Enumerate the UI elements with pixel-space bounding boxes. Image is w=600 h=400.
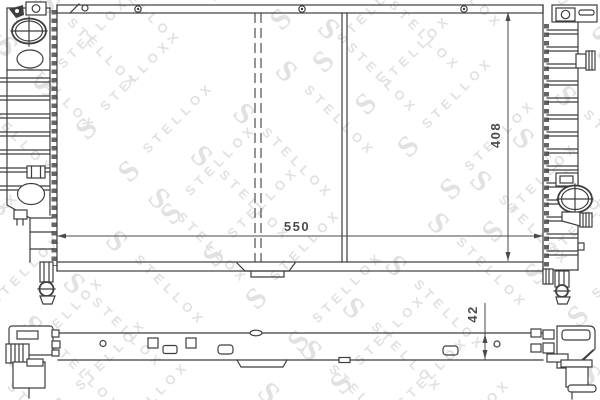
left-tank-side-clip (14, 210, 27, 225)
right-tank-bump (578, 243, 584, 250)
watermark-text: STELLOX (301, 82, 379, 160)
right-tank-lower-bracket (562, 212, 592, 227)
left-drain-plug (38, 262, 55, 304)
bottom-channel-tab (237, 360, 287, 367)
watermark-logo: S (251, 375, 286, 400)
drawing-canvas: STELLOXSSTELLOXSSTELLOXSSTELLOXSSTELLOXS… (0, 0, 600, 400)
top-bar-screws (135, 6, 467, 12)
watermark-text: STELLOX (132, 252, 210, 330)
watermark-logo: S (475, 214, 510, 249)
watermark-logo: S (306, 44, 341, 79)
core-bottom-bar (57, 262, 543, 271)
right-drain-plug (543, 269, 570, 304)
watermark-text: STELLOX (292, 0, 370, 4)
lower-oval-port (18, 184, 45, 205)
watermark-logo: S (44, 390, 79, 400)
watermark-logo: S (378, 248, 413, 283)
right-tank-top-bracket (552, 5, 597, 22)
dimension-core-width: 550 (57, 219, 543, 239)
watermark-text: STELLOX (149, 0, 227, 8)
watermark-layer: STELLOXSSTELLOXSSTELLOXSSTELLOXSSTELLOXS… (0, 0, 600, 400)
watermark-logo: S (433, 171, 468, 206)
watermark-logo: S (263, 2, 298, 37)
watermark-text: STELLOX (436, 375, 514, 400)
watermark-logo: S (269, 54, 304, 89)
watermark-text: STELLOX (588, 223, 600, 301)
dimension-height-label: 408 (488, 122, 503, 148)
left-end-block (6, 326, 60, 398)
center-divider-dashed (255, 13, 261, 262)
left-tank-mid-bracket (27, 166, 45, 178)
watermark-logo: S (99, 223, 134, 258)
watermark-logo: S (585, 19, 600, 54)
watermark-logo: S (111, 154, 146, 189)
right-end-block (531, 326, 596, 399)
watermark-text: STELLOX (453, 234, 531, 312)
upper-oval-port (17, 50, 43, 68)
watermark-logo: S (348, 86, 383, 121)
dimension-thickness-label: 42 (465, 305, 480, 322)
dimension-width-label: 550 (284, 219, 310, 234)
watermark-text: STELLOX (72, 315, 150, 393)
watermark-text: STELLOX (581, 107, 600, 185)
radiator-technical-drawing: STELLOXSSTELLOXSSTELLOXSSTELLOXSSTELLOXS… (0, 0, 600, 400)
watermark-logo: S (238, 281, 273, 316)
watermark-logo: S (391, 129, 426, 164)
left-tank-top-bracket (26, 2, 46, 15)
right-tank-side-fitting (576, 51, 595, 70)
